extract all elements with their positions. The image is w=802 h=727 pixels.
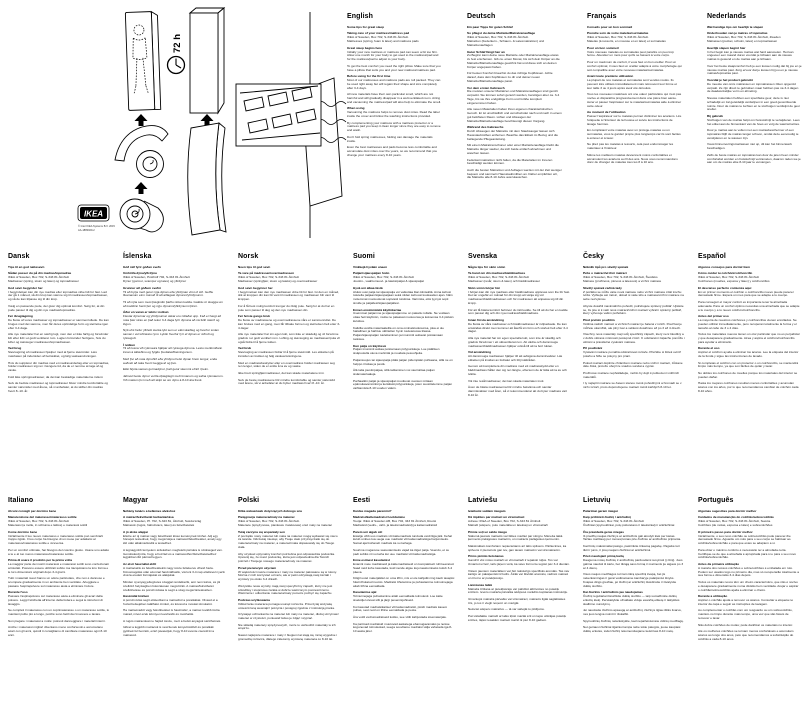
paragraph: Alle nye materialer har en særlig lugt, … [8,333,110,344]
paragraph: Genom att komplettera din madrass med et… [468,365,570,376]
paragraph: Idővel a legjobb matracok is veszítenek … [123,626,225,637]
paragraph: Pat vislabākie matrači ar laiku kļūst ma… [468,615,570,623]
paragraph: W większości nasze materace i maty na ma… [238,571,340,582]
product-types: Dýnur (gormur, svampur og latex) og yfir… [123,280,225,284]
language-tagline: Några tips för skön sömn [468,266,570,270]
paragraph: Se completi il materasso con un coprimat… [8,609,110,617]
paragraph: Ikke brett springfjærmadrasser, det kan … [238,372,340,376]
paragraph: A matracaink és fekvőbetéteink nagy rész… [123,567,225,578]
paragraph: Hvis du supplerer din madras med et madr… [8,362,110,373]
paragraph: A legnagyobb kényelem érdekében megfelel… [123,549,225,560]
curved-pad-illustration [188,123,226,235]
language-column-magyar: MagyarNéhány tanács a kellemes alváshozA… [123,497,225,644]
product-types: Matrači (atsperu, putu materiāla un late… [468,524,570,528]
language-tagline: Ein paar Tipps für guten Schlaf [467,26,562,30]
paragraph: Kõigil uutel materjalidel on oma lõhn, m… [353,577,455,588]
paragraph: A rugós matracokat ne hajtsd össze, mert… [123,620,225,624]
paragraph: Minden új anyag jellegzetes szaggal rend… [123,581,225,592]
paragraph: Abyste dosáhli maximálního pohodlí, potř… [583,305,685,316]
paragraph: Ne pliez pas les matelas à ressorts, cel… [587,143,682,151]
paragraph: Ekki brjóta saman gormadýnur, það getur … [123,368,225,372]
paragraph: Støvsuging av madrassen bidrar til å fje… [238,351,340,359]
language-column-slenska: ÍslenskaGóð ráð fyrir góðan svefnUmhirða… [123,253,225,400]
paragraph: Don't fold spring mattresses, folding ca… [347,136,442,144]
language-tagline: Kilka wskazówek dotyczących dobrego snu [238,510,340,514]
paragraph: La mayoría de nuestros colchones y colch… [698,319,800,330]
paragraph: Votre nouveau matelas ou surmatelas peut… [587,51,682,59]
language-column-nederlands: NederlandsWat handige tips om heerlijk t… [707,13,802,183]
paragraph: Hasta los mejores colchones resultan men… [698,382,800,393]
up-arrow-icon [135,182,148,194]
language-column-fran-ais: FrançaisConseils pour un bon sommeilPren… [587,13,682,183]
paragraph: Anche i materassi migliori diventano men… [8,626,110,637]
language-name: Íslenska [123,253,225,262]
paragraph: Tutti i materiali nuovi hanno un odore p… [8,577,110,588]
paragraph: Flestar dýnurnar og yfirdýnurnar okkar e… [123,315,225,326]
paragraph: Initially your new mattress or mattress … [347,51,442,62]
paragraph: Odkurzanie materaca pomaga usunąć roztoc… [238,603,340,611]
paragraph: La maggior parte dei nostri materassi e … [8,563,110,574]
paragraph: En complétant votre matelas avec un prot… [587,129,682,140]
paragraph: Net geriausi čiužiniai ilgainiui tampa n… [583,626,685,634]
paragraph: Matrača tīrīšana ar putekļsūcēju var pal… [468,588,570,596]
language-tagline: Několik tipů pro skvělý spánek [583,266,685,270]
language-row-bottom: ItalianoAlcuni consigli per dormire bene… [8,497,800,644]
paragraph: Fold ikke springmadrasser, da det kan be… [8,376,110,380]
paragraph: Für besten Komfort brauchst du das richt… [467,72,562,83]
assembly-illustration: 72 h [0,0,352,246]
paragraph: Všechny nové materiály mají svůj specifi… [583,333,685,344]
paragraph: Inizialmente il tuo nuovo materasso o ma… [8,535,110,546]
paragraph: Pružinové matrace nepřekládejte, mohlo b… [583,372,685,380]
paragraph: Kui kasutad madratsikaitset või kattemad… [353,606,455,614]
language-name: Nederlands [707,13,802,22]
paragraph: Passer l'aspirateur sur le matelas perme… [587,115,682,126]
language-name: Español [698,253,800,262]
paragraph: Visos naujos medžiagos turi tam tikrą sp… [583,573,685,588]
language-column-dansk: DanskTips til en god nattesøvnSådan pass… [8,253,110,400]
language-name: Lietuvių [583,497,685,506]
paragraph: För att få bästa komfort behöver du rätt… [468,309,570,317]
language-column-english: EnglishSome tips for great sleepTaking c… [347,13,442,183]
paragraph: Til að losna við rykmaura hjálpar að ryk… [123,347,225,355]
paragraph: Não dobre colchões de molas; pode danifi… [698,624,800,628]
product-types: Matracok (rugós, habszivacs, latex) és f… [123,524,225,528]
paragraph: Jafnvel bestu dýnur verða óþægilegri með… [123,375,225,383]
language-column-suomi: SuomiVinkkejä hyvään uneenPatjan/sijausp… [353,253,455,400]
product-types: Materassi (a molle, in schiuma e lattice… [8,524,110,528]
paragraph: Ära voldi vedrumadratseid kokku, see või… [353,616,455,620]
language-column-norsk: NorskNoen tips til god søvnTa vare på ma… [238,253,340,400]
paragraph: Ao complementar o colchão com um resguar… [698,609,800,620]
language-tagline: Algumas sugestões para dormir melhor [698,510,800,514]
paragraph: Att dammsuga madrassen hjälper till att … [468,355,570,363]
product-types: Madratsid (vedru-, vaht- ja lateksmadrat… [353,524,455,528]
language-column-espa-ol: EspañolAlgunos consejos para dormir bien… [698,253,800,400]
language-name: Polski [238,497,340,506]
language-column-svenska: SvenskaNågra tips för skön sömnTa hand o… [468,253,570,400]
paragraph: Vik inte resårmadrasser, det kan skada m… [468,380,570,384]
paragraph: Durch Absaugen der Matratze mit dem Stau… [467,130,562,141]
paragraph: Esialgu võib uus madrats või kattemadrat… [353,535,455,546]
clock-label: 72 h [172,34,183,53]
language-row-middle: DanskTips til en god nattesøvnSådan pass… [8,253,800,400]
paragraph: Elsőre az új matrac vagy fekvőbetét kiss… [123,535,225,546]
paragraph: Useimmat patjamme ja sijauspatjamme on p… [353,312,455,323]
paragraph: Kad būtų maksimaliai patogu, pasirinkite… [583,545,685,553]
paragraph: To get the best comfort you need the rig… [347,65,442,73]
paragraph: Non piegare i materassi a molle: potrest… [8,620,110,624]
paragraph: Čiužinį reguliariai išsiurbkite dulkių s… [583,595,685,606]
language-column-portugu-s: PortuguêsAlgumas sugestões para dormir m… [698,497,800,644]
paragraph: Maksimālam komfortam nepieciešams arī la… [468,545,570,553]
paragraph: A maioria dos nossos colchões e sobrecol… [698,567,800,578]
logo-fineprint-1: © Inter IKEA Systems B.V. 2015 [78,224,115,228]
72h-clock: 72 h [168,34,185,74]
paragraph: Zelfs de beste matras en topmatras kan d… [707,154,802,165]
paragraph: Passare l'aspirapolvere sul materasso ai… [8,595,110,606]
product-types: Joustin-, vaahtomuovi- ja lateksipatjat … [353,280,455,284]
language-name: Norsk [238,253,340,262]
language-name: Eesti [353,497,455,506]
paragraph: En un primer momento el colchón o colcho… [698,291,800,299]
product-types: Colchones (muelles, espuma y látex) y co… [698,280,800,284]
paragraph: Nelociet atsperu matračus — tā var saboj… [468,608,570,612]
language-column-italiano: ItalianoAlcuni consigli per dormire bene… [8,497,110,644]
language-name: Česky [583,253,685,262]
paragraph: Stofzuigen van de matras helpt om huisst… [707,119,802,127]
paragraph: Til að byrja með getur nýja dýnan eða yf… [123,291,225,299]
language-name: Magyar [123,497,225,506]
product-types: Matrace (pružinové, pěnové a latexové) a… [583,280,685,284]
paragraph: Enamik meie madratseid ja kattemadratsei… [353,563,455,574]
language-column-eesti: EestiKuidas magada paremini?Madratsi/kat… [353,497,455,644]
paragraph: For å få best mulig komfort trenger du r… [238,305,340,313]
paragraph: Izmantojot matrača pārvalku vai virsmatr… [468,598,570,606]
paragraph: Even the best mattresses and pads become… [347,146,442,157]
paragraph: Vacuuming the mattress helps to remove d… [347,111,442,119]
paragraph: Para obter o máximo conforto é necessári… [698,549,800,560]
paragraph: Parhaatkin patjat ja sijauspatjat muuttu… [353,380,455,391]
paragraph: Spyruoklinių čiužinių nelankstykite, kad… [583,620,685,624]
product-types: Materace (sprężynowe, piankowe i latekso… [238,524,340,528]
language-name: Latviešu [468,497,570,506]
slatted-base-detail-box [236,84,321,146]
product-types: Madrasser (springfjær, skum og lateks) o… [238,280,340,284]
paragraph: La plupart de nos matelas et surmatelas … [587,79,682,90]
paragraph: Aluksi uusi patja tai sijauspatja voi va… [353,291,455,306]
paragraph: By complementing your mattress with a ma… [347,122,442,133]
paragraph: A porszívózás segít eltávolítani a matra… [123,599,225,607]
paragraph: Nawet najlepsze materace i maty z biegie… [238,634,340,642]
paragraph: Støvsugning af madrassen hjælper med at … [8,351,110,359]
paragraph: In het begin kan je nieuwe matras wat ha… [707,51,802,62]
paragraph: Alle nye materialer har sin egen lukt, s… [238,333,340,344]
paragraph: Með því að nota dýnuhlíf eða yfirdýnu he… [123,358,225,366]
paragraph: Älä taita joustinpatjaa, sillä taittamin… [353,369,455,377]
product-types: Madrasser (spring, skum og latex) og top… [8,280,110,284]
paragraph: Selv de beste madrassene blir mindre kom… [238,379,340,387]
paragraph: Para conseguir el mayor confort es impor… [698,301,800,312]
language-tagline: Tips til en god nattesøvn [8,266,110,270]
flat-pad-illustration [190,8,224,113]
paragraph: Gandrīz visi mūsu matrači un virsmatrači… [468,559,570,567]
paragraph: I begyndelsen kan din nye madras eller t… [8,291,110,302]
paragraph: Mit einem Matratzenschoner oder einer Ma… [467,144,562,155]
product-types: Matratzen (Federkern-, Schaum- & Latexma… [467,40,562,48]
language-tagline: Góð ráð fyrir góðan svefn [123,266,225,270]
paragraph: No dobles los colchones de muelles porqu… [698,372,800,380]
language-tagline: Alcuni consigli per dormire bene [8,510,110,514]
language-tagline: Vinkkejä hyvään uneen [353,266,455,270]
paragraph: Aspirar el colchón ayuda a eliminar los … [698,351,800,359]
language-tagline: Wat handige tips om heerlijk te slapen [707,26,802,30]
product-types: Colchões (de molas, espuma e látex) e so… [698,524,800,528]
language-tagline: Conseils pour un bon sommeil [587,26,682,30]
paragraph: De flesta av våra madrasser och bäddmadr… [468,323,570,334]
paragraph: De meeste van onze matrassen en topmatra… [707,83,802,94]
paragraph: Pokud matraci doplníte chráničem matrace… [583,362,685,370]
paragraph: Většina našich matrací a vrchních matrac… [583,323,685,331]
logo-fineprint-2: AA-1883029-2 [78,228,95,232]
language-column-esky: ČeskyNěkolik tipů pro skvělý spánekPéče … [583,253,685,400]
language-column-lietuvi: LietuviųPatarimai geram mieguiKaip priži… [583,497,685,644]
product-types: Mattresses (spring, foam & latex) and ma… [347,40,442,44]
paragraph: Si completas el colchón con un protector… [698,362,800,370]
paragraph: De fleste av madrassene og overmadrassen… [238,319,340,330]
language-name: Português [698,497,800,506]
paragraph: Wszystkie nowe wyroby mają swój specyfic… [238,585,340,596]
paragraph: Patjansuojus tai sijauspatja pitää patja… [353,359,455,367]
language-name: Suomi [353,253,455,262]
paragraph: I början kan din nya madrass eller bäddm… [468,291,570,306]
language-name: Deutsch [467,13,562,22]
paragraph: I begynnelsen kan den nye madrassen virk… [238,291,340,302]
language-tagline: Néhány tanács a kellemes alváshoz [123,510,225,514]
paragraph: Ha matracvédőt vagy fekvőbetétet is hasz… [123,609,225,617]
paragraph: Nieuwe materialen hebben een specifieke … [707,97,802,112]
paragraph: Alla nya material har sin egen speciella… [468,337,570,348]
paragraph: Ka parimad madratsid muutuvad aastatega … [353,623,455,634]
paragraph: Nýtt efni hefur yfirleitt sterka lykt se… [123,329,225,340]
product-types: Madrasser (resår, skum & latex) och bädd… [468,280,570,284]
paragraph: Tolmuimejaga puhastamine aitab eemaldada… [353,595,455,603]
paragraph: Federkernmatratzen nicht falten, da die … [467,159,562,167]
language-name: Français [587,13,682,22]
product-types: Čiužiniai (spyruokliniai, putų poliureta… [583,524,685,528]
paragraph: Per un comfort ottimale, hai bisogno del… [8,549,110,557]
language-tagline: Some tips for great sleep [347,26,442,30]
paragraph: Używając ochraniacza na materac lub maty… [238,613,340,621]
paragraph: Iš pradžių naujas čiužinys ar antčiužini… [583,535,685,543]
rolled-mattress-illustration [120,199,163,232]
paragraph: Vysávání matrace pomáhá odstraňovat rozt… [583,351,685,359]
language-tagline: Algunos consejos para dormir bien [698,266,800,270]
paragraph: Auch die besten Matratzen und Auflagen w… [467,169,562,180]
paragraph: Voor het beste slaapcomfort heb je een k… [707,65,802,76]
paragraph: Med en madrassbeskytter eller en overmad… [238,362,340,370]
paragraph: Alle neuen Materialien haben ihren eigen… [467,108,562,123]
product-types: Matelas (à ressorts, en mousse et en lat… [587,40,682,44]
language-name: Italiano [8,497,110,506]
ikea-logo: IKEA © Inter IKEA Systems B.V. 2015 AA-1… [78,205,115,232]
language-tagline: Ieteikumi saldam miegam [468,510,570,514]
paragraph: Inicialmente, o seu novo colchão ou sobr… [698,535,800,546]
language-tagline: Patarimai geram miegui [583,510,685,514]
paragraph: Même les meilleurs matelas deviennent mo… [587,154,682,165]
paragraph: Til að nýta sem mest þægindin þarftu rét… [123,301,225,309]
language-tagline: Kuidas magada paremini? [353,510,455,514]
paragraph: Sākumā jaunais matracis var likties mazl… [468,535,570,543]
paragraph: Kaikilla uusilla materiaaleilla on oma o… [353,327,455,342]
paragraph: Z początku nowy materac lub mata na mate… [238,535,340,550]
mattress-with-person-illustration [125,11,160,110]
paragraph: Todos os materiais novos têm um cheiro c… [698,581,800,592]
paragraph: Aby uzyskać optymalny komfort potrzebna … [238,553,340,564]
paragraph: Jei naudosite čiužinio apsaugą ar antčiu… [583,609,685,617]
paragraph: Most of our mattresses and mattress pads… [347,79,442,90]
unrolling-mattress-illustration [115,126,168,178]
paragraph: Pour un maximum de confort, il vous faut… [587,61,682,72]
paragraph: Visiem jauniem materiāliem var būt rakst… [468,570,570,581]
language-row-top: EnglishSome tips for great sleepTaking c… [347,13,802,183]
paragraph: All new materials have their own particu… [347,93,442,104]
language-name: Dansk [8,253,110,262]
paragraph: Até os melhores colchões se tornam menos… [698,630,800,641]
paragraph: Dauguma mūsų čiužinių ir antčiužinių par… [583,559,685,570]
paragraph: Zu Beginn kann deine neue Matratze oder … [467,54,562,69]
paragraph: Todos los materiales nuevos tienen un ol… [698,333,800,344]
language-name: English [347,13,442,22]
paragraph: Door je matras aan te vullen met een mat… [707,129,802,140]
paragraph: Die meisten unserer Matratzen und Matrat… [467,90,562,105]
paragraph: Tous les nouveaux matériaux ont une odeu… [587,93,682,108]
language-tagline: Noen tips til god søvn [238,266,340,270]
paragraph: I ty nejlepší matrace se časem stanou mé… [583,382,685,390]
ikea-logo-text: IKEA [84,210,103,219]
paragraph: De fleste af vores madrasser og topmadra… [8,319,110,330]
paragraph: Även de bästa madrasserna blir mindre be… [468,386,570,397]
language-column-polski: PolskiKilka wskazówek dotyczących dobreg… [238,497,340,644]
paragraph: Patjan imurointi auttaa poistamaan pölyp… [353,348,455,356]
paragraph: Vouw binnenveringsmatrassen niet op, dit… [707,143,802,151]
language-name: Svenska [468,253,570,262]
product-types: Matrassen (pocket, schuim, latex) en top… [707,40,802,44]
language-column-deutsch: DeutschEin paar Tipps für guten SchlafSo… [467,13,562,183]
language-column-latvie-u: LatviešuIeteikumi saldam miegamKā rūpēti… [468,497,570,644]
paragraph: Suurima mugavuse saavutamiseks vajad ka … [353,549,455,557]
up-arrow-icon [135,114,148,126]
paragraph: Vælg en passende pude, der giver dig opt… [8,305,110,313]
paragraph: Aspirar o colchão ajuda a remover os áca… [698,599,800,607]
paragraph: Selv de bedste madrasser og topmadrasser… [8,382,110,393]
paragraph: Z počátku se může vaše nová matrace nebo… [583,291,685,302]
paragraph: Nie składaj materacy sprężynowych, może … [238,624,340,632]
